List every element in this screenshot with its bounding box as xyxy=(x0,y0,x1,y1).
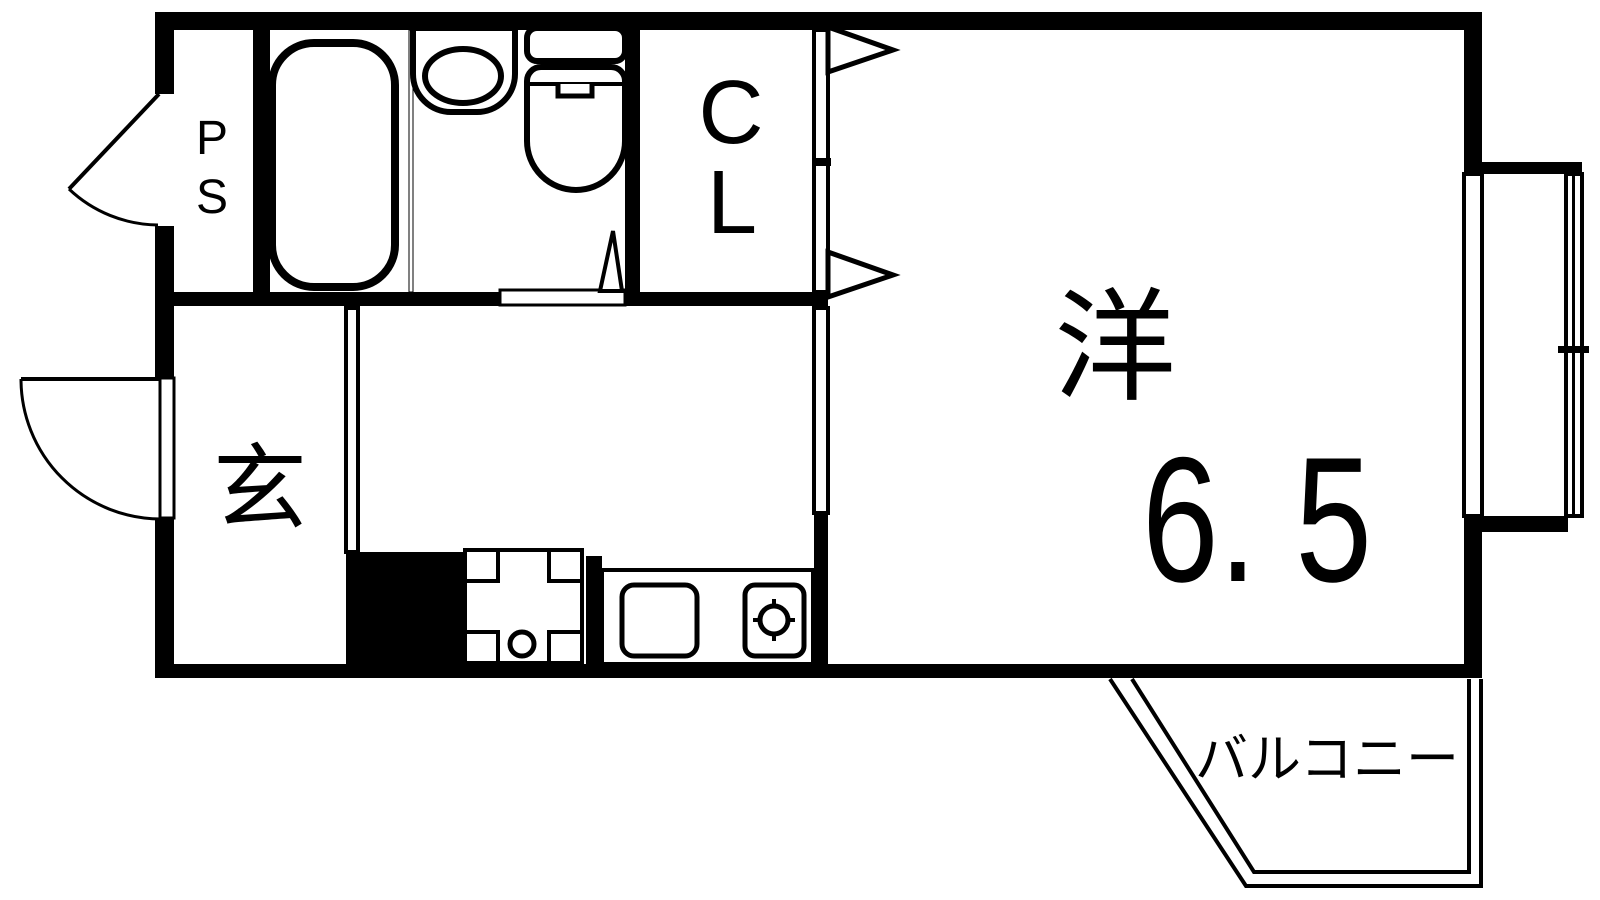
wall-ps-bath-divider xyxy=(253,30,270,292)
label-pipe-space-s: S xyxy=(196,171,228,224)
kitchen-unit-block xyxy=(346,552,463,664)
pan-drain-circle xyxy=(510,632,534,656)
wall-sanitary-bottom xyxy=(155,292,814,306)
wall-top xyxy=(155,12,1482,30)
closet-door-tick xyxy=(813,158,831,166)
label-balcony: バルコニー xyxy=(1195,730,1459,789)
label-western-room: 洋 xyxy=(1054,280,1176,416)
kitchen xyxy=(346,550,813,664)
pan-corner-bottom-right xyxy=(549,632,582,663)
closet-door-arrow-top xyxy=(828,27,893,72)
window-nub-bottom xyxy=(1464,516,1482,533)
bay-window-latch-tick xyxy=(1558,346,1589,353)
label-pipe-space-p: P xyxy=(196,112,228,165)
label-western-room-size: 6. 5 xyxy=(1142,420,1372,619)
floor-plan: P S C L 玄 洋 6. 5 バルコニー xyxy=(0,0,1600,900)
wash-basin-bowl xyxy=(425,49,501,103)
label-entrance: 玄 xyxy=(213,436,307,541)
label-closet-c: C xyxy=(699,63,764,163)
wall-hall-lower xyxy=(814,513,828,664)
stove-burner xyxy=(760,606,788,634)
counter-divider-panel xyxy=(586,556,602,664)
bay-window xyxy=(1464,162,1589,533)
pan-corner-bottom-left xyxy=(465,632,498,663)
pan-corner-top-right xyxy=(549,550,582,581)
wall-left-upper xyxy=(155,12,174,94)
label-closet-l: L xyxy=(707,153,757,253)
window-nub-top xyxy=(1464,163,1482,174)
toilet-seat-notch xyxy=(558,84,592,96)
entrance-door-frame xyxy=(160,378,174,518)
wall-right-lower xyxy=(1464,533,1482,678)
bay-bottom-wall xyxy=(1482,516,1568,532)
kitchen-sink xyxy=(622,585,697,656)
wall-right-upper xyxy=(1464,12,1482,163)
ps-door-arc xyxy=(69,189,158,225)
washroom-door-triangle xyxy=(600,231,622,291)
bay-window-centerline xyxy=(1572,174,1575,516)
toilet-tank xyxy=(527,28,625,61)
room-sliding-partition xyxy=(814,308,828,513)
entrance-hall-partition xyxy=(346,308,358,552)
closet-door-arrow-bottom xyxy=(828,252,893,297)
main-window xyxy=(1464,174,1482,516)
wall-toilet-closet xyxy=(625,30,640,306)
sanitary-fixtures xyxy=(272,28,625,287)
floor-plan-drawing: P S C L 玄 洋 6. 5 バルコニー xyxy=(0,0,1600,900)
entrance-door-arc xyxy=(21,379,161,519)
wall-bottom xyxy=(155,664,1482,678)
bathtub xyxy=(272,43,395,287)
pan-corner-top-left xyxy=(465,550,498,581)
wall-left-lower xyxy=(155,518,174,678)
ps-door-leaf xyxy=(69,94,159,189)
